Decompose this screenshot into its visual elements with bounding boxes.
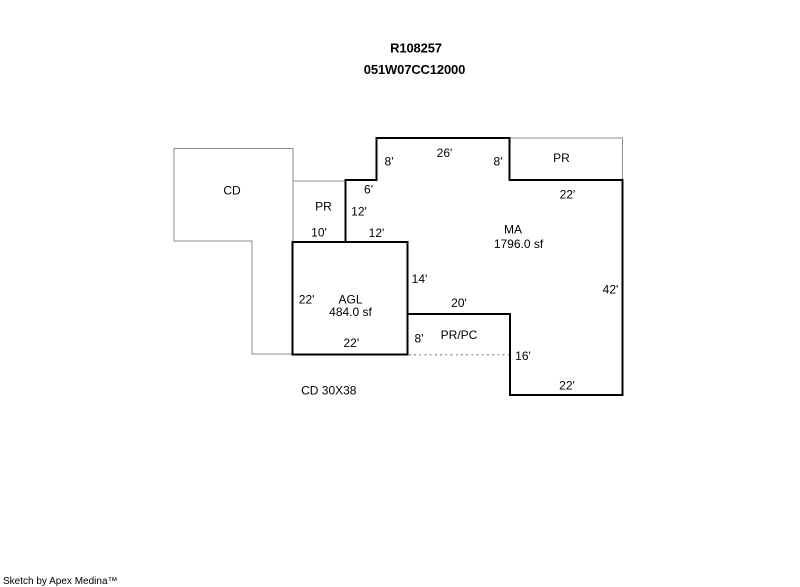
svg-text:22': 22' <box>299 293 315 307</box>
svg-text:22': 22' <box>559 379 575 393</box>
svg-text:R108257: R108257 <box>390 40 442 55</box>
svg-text:10': 10' <box>311 225 327 239</box>
svg-text:Sketch by Apex Medina™: Sketch by Apex Medina™ <box>3 576 118 587</box>
svg-text:12': 12' <box>351 205 367 219</box>
svg-text:42': 42' <box>603 283 619 297</box>
svg-text:14': 14' <box>412 272 428 286</box>
svg-text:8': 8' <box>385 155 394 169</box>
svg-text:484.0 sf: 484.0 sf <box>329 305 372 319</box>
svg-text:PR: PR <box>315 200 332 214</box>
svg-text:CD: CD <box>223 183 241 197</box>
svg-text:20': 20' <box>451 296 467 310</box>
svg-text:1796.0 sf: 1796.0 sf <box>494 237 544 251</box>
svg-text:PR/PC: PR/PC <box>441 328 478 342</box>
svg-text:22': 22' <box>560 188 576 202</box>
svg-text:CD 30X38: CD 30X38 <box>301 384 357 398</box>
svg-text:12': 12' <box>369 226 385 240</box>
svg-text:22': 22' <box>343 336 359 350</box>
svg-text:16': 16' <box>515 349 531 363</box>
svg-text:26': 26' <box>437 146 453 160</box>
svg-text:PR: PR <box>553 151 570 165</box>
svg-text:MA: MA <box>504 223 522 237</box>
svg-text:051W07CC12000: 051W07CC12000 <box>364 62 465 77</box>
svg-text:6': 6' <box>364 182 373 196</box>
svg-text:8': 8' <box>415 331 424 345</box>
svg-text:8': 8' <box>494 155 503 169</box>
